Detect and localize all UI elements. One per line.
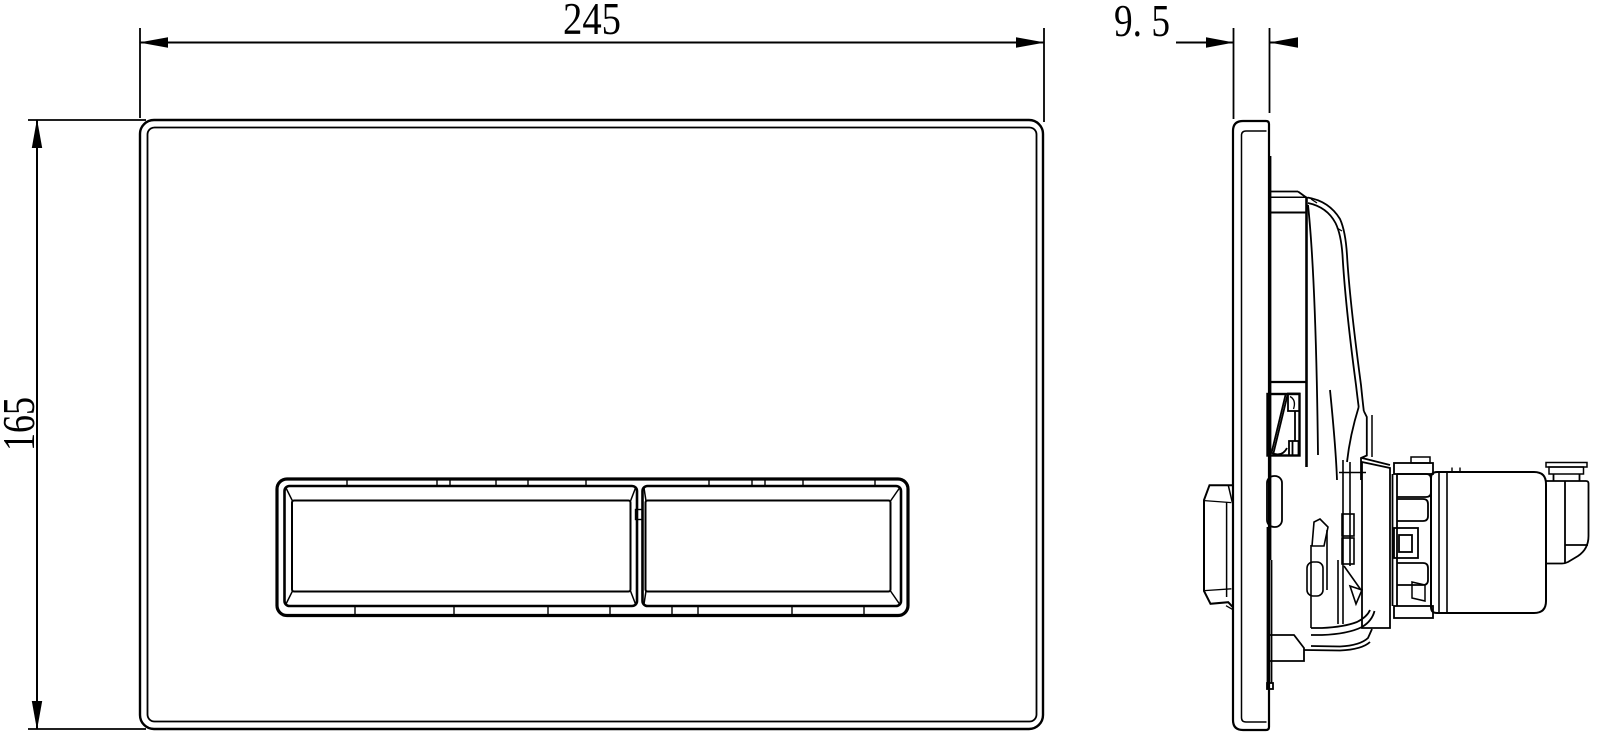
svg-text:165: 165 [0, 397, 44, 451]
svg-text:245: 245 [563, 0, 621, 44]
svg-text:9. 5: 9. 5 [1114, 0, 1170, 46]
